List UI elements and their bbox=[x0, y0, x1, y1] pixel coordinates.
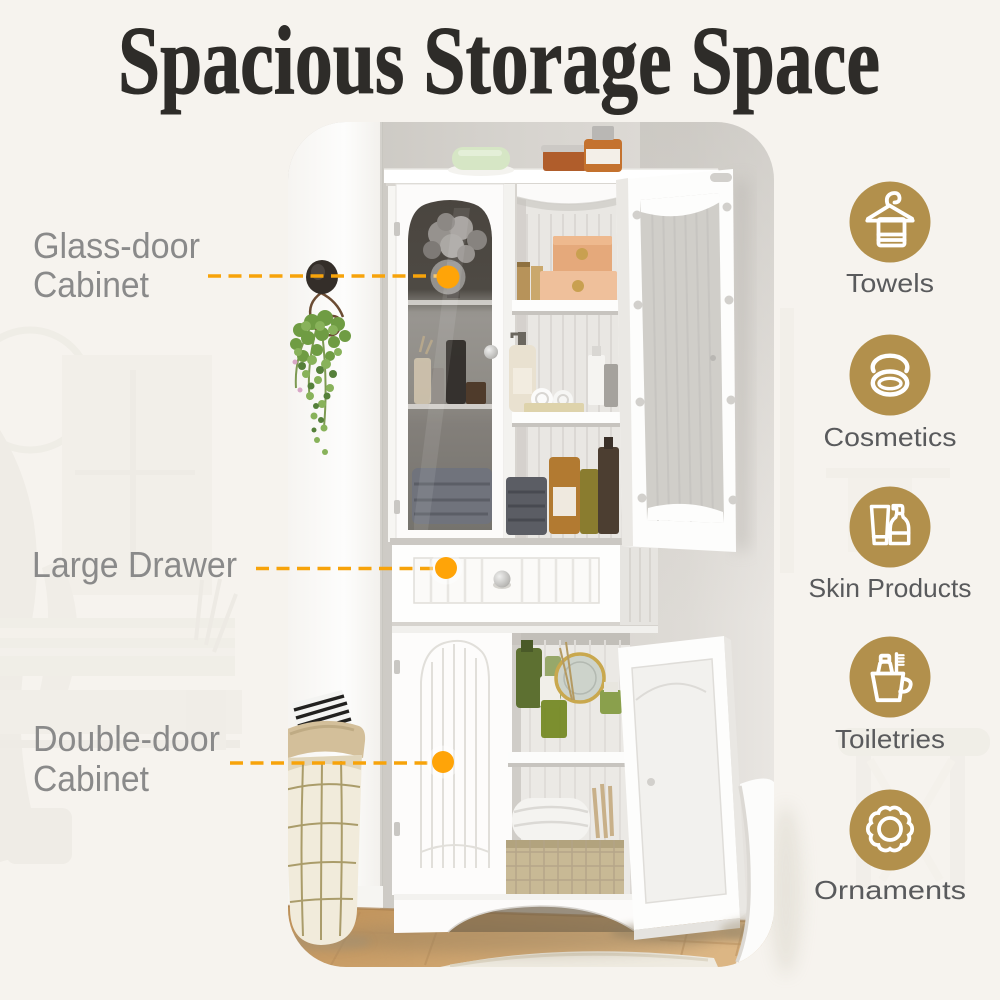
svg-text:Toiletries: Toiletries bbox=[835, 724, 945, 754]
svg-text:Towels: Towels bbox=[846, 268, 934, 298]
svg-text:Cosmetics: Cosmetics bbox=[824, 422, 957, 452]
svg-text:Glass-door: Glass-door bbox=[33, 225, 200, 266]
svg-text:Ornaments: Ornaments bbox=[814, 875, 966, 905]
svg-text:Cabinet: Cabinet bbox=[33, 264, 149, 305]
svg-text:Large Drawer: Large Drawer bbox=[32, 544, 237, 585]
svg-text:Cabinet: Cabinet bbox=[33, 758, 149, 799]
svg-text:Spacious Storage Space: Spacious Storage Space bbox=[118, 7, 880, 114]
svg-text:Skin Products: Skin Products bbox=[809, 573, 972, 603]
svg-text:Double-door: Double-door bbox=[33, 718, 220, 759]
